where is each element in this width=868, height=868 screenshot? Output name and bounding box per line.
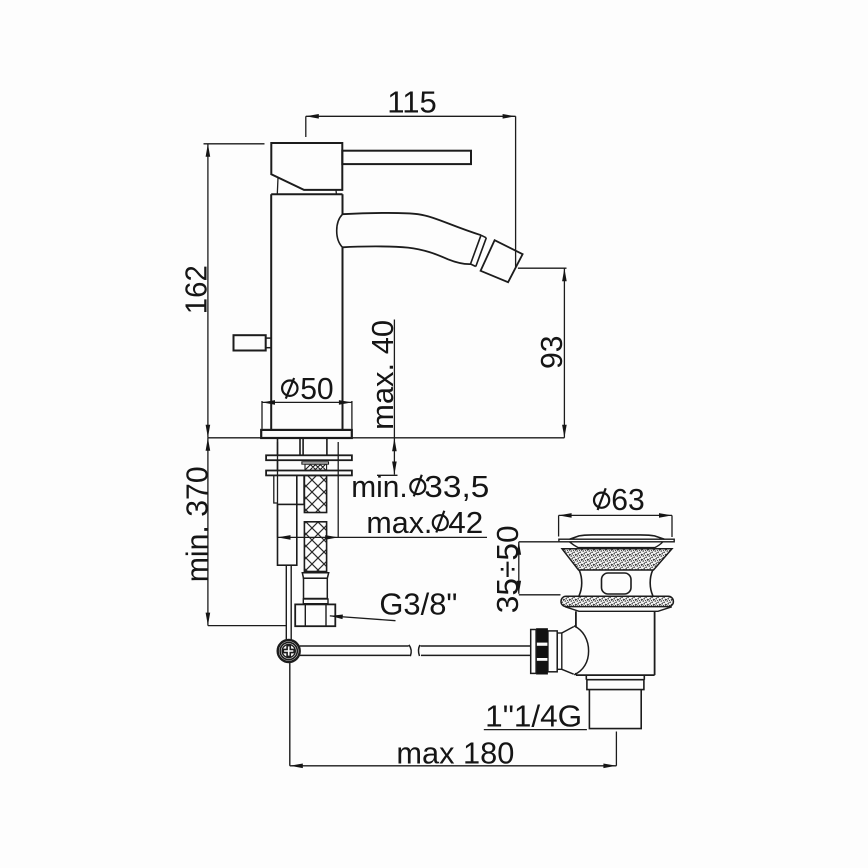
svg-text:50: 50 <box>300 371 334 406</box>
svg-text:G3/8": G3/8" <box>379 586 457 621</box>
svg-text:63: 63 <box>611 482 645 517</box>
svg-text:max 180: max 180 <box>396 736 514 771</box>
svg-text:1"1/4G: 1"1/4G <box>485 698 582 733</box>
svg-text:max.: max. <box>366 505 432 540</box>
svg-text:115: 115 <box>387 85 437 120</box>
svg-text:162: 162 <box>178 265 213 314</box>
svg-text:42: 42 <box>448 505 483 540</box>
svg-text:35÷50: 35÷50 <box>490 525 525 613</box>
svg-text:min. 370: min. 370 <box>179 466 214 582</box>
svg-text:min.: min. <box>351 469 408 504</box>
svg-text:33,5: 33,5 <box>424 469 489 504</box>
svg-text:max. 40: max. 40 <box>365 320 400 430</box>
svg-text:93: 93 <box>534 336 569 370</box>
